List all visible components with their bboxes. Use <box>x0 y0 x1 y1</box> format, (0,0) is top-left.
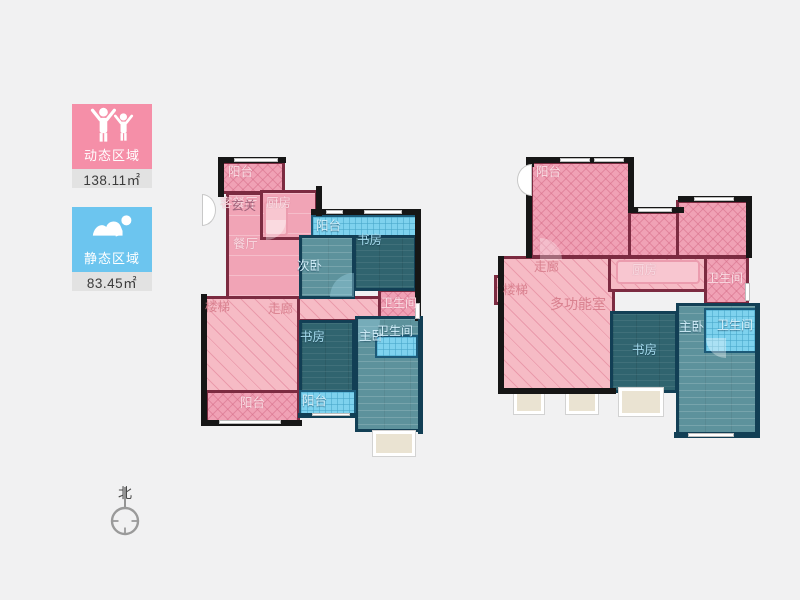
room-label: 厨房 <box>266 197 291 210</box>
room-terrace <box>676 200 750 258</box>
room-label: 书房 <box>357 234 382 247</box>
room-multi-function <box>501 256 615 392</box>
legend-dynamic-area: 138.11㎡ <box>72 169 152 188</box>
room-label: 阳台 <box>302 395 327 408</box>
room-label: 餐厅 <box>233 238 258 251</box>
room-label: 阳台 <box>240 397 265 410</box>
wall <box>628 157 634 213</box>
room-label: 阳台 <box>536 166 561 179</box>
room-label: 阳台 <box>228 166 253 179</box>
room-label: 走廊 <box>268 303 293 316</box>
window <box>688 433 734 437</box>
room-label: 主卧 <box>679 321 704 334</box>
wall <box>218 157 224 197</box>
room-label: 玄关 <box>231 200 256 213</box>
room-label: 走廊 <box>534 261 559 274</box>
room-label: 多功能室 <box>550 297 606 311</box>
window <box>560 158 590 162</box>
window <box>638 208 672 212</box>
door-swing <box>517 164 532 196</box>
wall <box>746 196 752 258</box>
room-label: 书房 <box>300 331 325 344</box>
compass-dial <box>112 487 138 534</box>
window <box>234 158 278 162</box>
window-bay <box>373 431 415 456</box>
door-swing <box>202 194 216 226</box>
wall <box>418 316 423 434</box>
room-label: 楼梯 <box>205 301 230 314</box>
wall <box>498 256 504 394</box>
room-label: 卫生间 <box>717 319 753 331</box>
room-label: 书房 <box>632 344 657 357</box>
room-label: 阳台 <box>316 220 341 233</box>
legend-dynamic-label: 动态区域 <box>84 145 140 164</box>
wall <box>755 303 760 438</box>
window <box>745 283 750 301</box>
room-label: 卫生间 <box>707 272 743 284</box>
legend-static-label: 静态区域 <box>84 248 140 267</box>
room-label: 次卧 <box>297 260 322 273</box>
compass: 北 <box>103 485 147 539</box>
legend-dynamic-card[interactable]: 动态区域 <box>72 104 152 169</box>
room-label: 卫生间 <box>381 297 417 309</box>
floorplan-page: 动态区域 138.11㎡ 静态区域 83.45㎡ <box>0 0 800 600</box>
wall <box>498 388 616 394</box>
window <box>364 210 402 214</box>
window <box>312 413 350 416</box>
kitchen-counter <box>616 260 700 284</box>
window <box>694 197 734 201</box>
legend-static-area: 83.45㎡ <box>72 272 152 291</box>
people-arms-up-icon <box>72 104 152 145</box>
legend-static-card[interactable]: 静态区域 <box>72 207 152 272</box>
wall <box>526 192 532 258</box>
room-label: 卫生间 <box>377 325 413 337</box>
window <box>594 158 624 162</box>
window <box>219 420 281 424</box>
window <box>326 210 343 214</box>
window-bay <box>619 388 663 416</box>
person-sleeping-icon <box>72 207 152 248</box>
room-label: 厨房 <box>632 264 657 277</box>
room-label: 楼梯 <box>503 284 528 297</box>
